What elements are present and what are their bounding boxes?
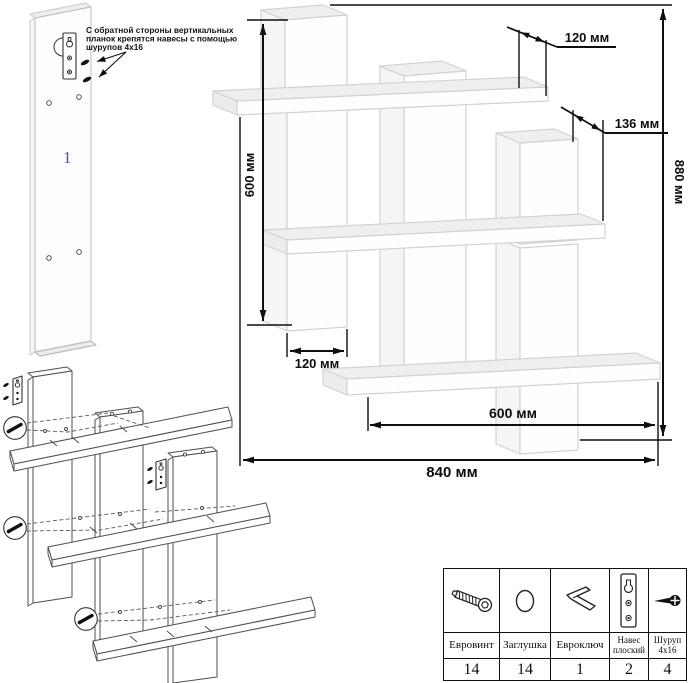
hex-key-icon <box>555 573 605 629</box>
part-number-label: 1 <box>63 148 72 167</box>
dim-label-shelf-length: 600 мм <box>489 405 537 421</box>
dim-label-shelf-depth: 120 мм <box>565 30 610 45</box>
part-qty: 4 <box>649 659 687 681</box>
hanger-screw-dot <box>69 57 71 59</box>
part-name: Заглушка <box>500 633 551 659</box>
main-shelf-drawing: 600 мм 880 мм 840 мм 600 мм 120 мм <box>213 5 687 481</box>
confirmat-screw-callout <box>75 608 98 631</box>
part-qty: 14 <box>444 659 500 681</box>
shelf-board-bottom <box>323 353 660 395</box>
part-name: Навес плоский <box>610 633 649 659</box>
dimension-plank-width: 120 мм <box>287 329 347 371</box>
hanger-screw-dot <box>69 71 71 73</box>
exploded-shelf-middle <box>48 503 270 567</box>
exploded-assembly-view <box>3 367 315 683</box>
parts-table: Евровинт Заглушка Евроключ Навес плоский… <box>443 568 687 681</box>
part-name: Шуруп 4x16 <box>649 633 687 659</box>
dim-label-total-height: 880 мм <box>672 160 687 205</box>
exploded-plank-right <box>168 447 217 683</box>
drill-hole <box>47 101 52 106</box>
cell-icon-naves <box>610 569 649 633</box>
confirmat-screw-icon <box>447 573 497 629</box>
flat-hanger-icon <box>613 571 645 631</box>
flat-hanger-icon <box>3 376 22 405</box>
dim-label-plank-width: 120 мм <box>295 356 340 371</box>
cap-plug-icon <box>505 573 545 629</box>
part-qty: 14 <box>500 659 551 681</box>
confirmat-screw-callout <box>4 417 27 440</box>
exploded-plank-left <box>28 367 72 606</box>
cell-icon-eurovint <box>444 569 500 633</box>
drill-hole <box>47 256 52 261</box>
annotation-note: С обратной стороны вертикальных планок к… <box>86 25 237 77</box>
vertical-plank-detail: 1 <box>30 3 96 356</box>
small-screw-icon <box>651 573 685 629</box>
drill-hole <box>77 250 82 255</box>
dim-label-plank-depth: 136 мм <box>615 116 660 131</box>
part-qty: 1 <box>551 659 610 681</box>
plank-left-edge <box>30 18 35 355</box>
part-name: Евровинт <box>444 633 500 659</box>
plank-right-lower <box>496 238 578 454</box>
annotation-line-3: шурупов 4x16 <box>86 42 143 52</box>
dim-label-total-width: 840 мм <box>426 464 477 481</box>
parts-names-row: Евровинт Заглушка Евроключ Навес плоский… <box>444 633 687 659</box>
part-qty: 2 <box>610 659 649 681</box>
drill-hole <box>77 95 82 100</box>
flat-hanger-icon <box>147 459 166 490</box>
parts-qty-row: 14 14 1 2 4 <box>444 659 687 681</box>
cell-icon-evroklyuch <box>551 569 610 633</box>
cell-icon-zaglushka <box>500 569 551 633</box>
cell-icon-shurup <box>649 569 687 633</box>
assembly-instruction-sheet: 1 С обратной стороны вертикальных планок… <box>0 0 700 683</box>
part-name: Евроключ <box>551 633 610 659</box>
parts-icons-row <box>444 569 687 633</box>
dim-label-left-height: 600 мм <box>242 153 257 198</box>
confirmat-screw-callout <box>4 517 27 540</box>
plank-left-lower <box>263 102 347 331</box>
